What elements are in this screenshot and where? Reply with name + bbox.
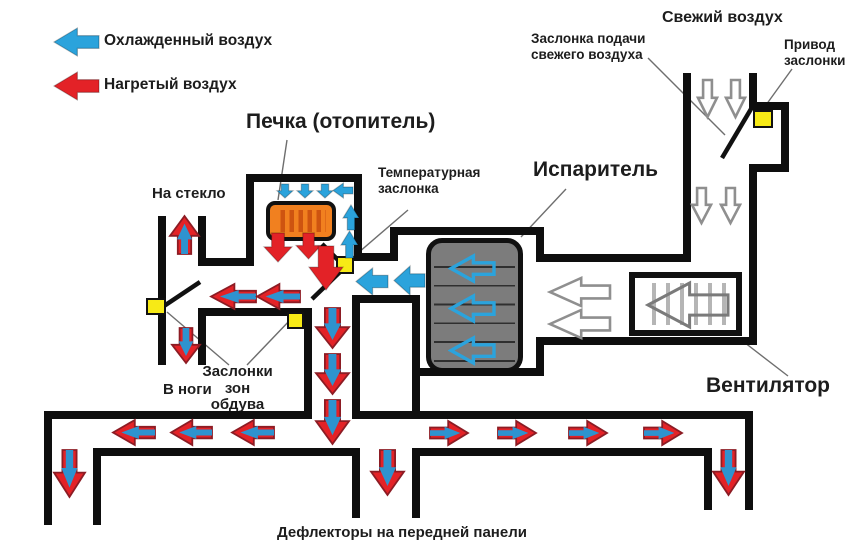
deflectors-label: Дефлекторы на передней панели bbox=[277, 524, 527, 541]
windshield-label: На стекло bbox=[152, 185, 226, 202]
vent-center-right bbox=[412, 448, 420, 518]
duct-right-arrow-2 bbox=[495, 418, 539, 448]
fan-arrow bbox=[645, 280, 731, 330]
fresh-damper-actuator-box bbox=[753, 110, 773, 128]
damper-flap-line bbox=[164, 282, 200, 306]
fresh-duct-left bbox=[683, 73, 691, 262]
cold-out-arrow-1 bbox=[391, 263, 428, 298]
heater-top-left-arrow bbox=[330, 180, 356, 201]
pointer-line bbox=[247, 318, 292, 365]
zone-dampers-label: Заслонки зон обдува bbox=[201, 364, 274, 414]
column-left bbox=[304, 308, 312, 419]
duct-left-inner bbox=[93, 448, 101, 525]
duct-bottom-bottom-left bbox=[93, 448, 360, 456]
column-arrow-1 bbox=[313, 305, 352, 351]
duct-right-arrow-1 bbox=[427, 418, 471, 448]
vent-center-left bbox=[352, 448, 360, 518]
heater-inlet-arrow-1 bbox=[274, 181, 296, 201]
fan-passage-top bbox=[536, 254, 691, 262]
feet-arrow bbox=[169, 325, 203, 366]
hvac-airflow-diagram: Охлажденный воздух Нагретый воздух Печка… bbox=[0, 0, 850, 560]
duct-bottom-bottom-right bbox=[420, 448, 712, 456]
fresh-damper-label: Заслонка подачи свежего воздуха bbox=[531, 31, 645, 63]
actuator-label: Привод заслонки bbox=[784, 37, 845, 69]
hot-column-arrow bbox=[306, 243, 346, 293]
vent-right-arrow bbox=[710, 447, 747, 498]
duct-left-arrow-2 bbox=[168, 417, 215, 448]
windshield-arrow bbox=[167, 213, 202, 257]
evap-chamber-top bbox=[390, 227, 544, 235]
fresh-in-arrow-2 bbox=[723, 77, 748, 120]
vent-center-arrow bbox=[368, 447, 407, 498]
pointer-line bbox=[766, 69, 792, 105]
blown-air-arrow-2 bbox=[547, 307, 613, 341]
fresh-down-arrow-1 bbox=[689, 185, 714, 226]
duct-left-arrow-1 bbox=[110, 417, 158, 448]
evap-flow-arrow-1 bbox=[448, 253, 497, 284]
temp-damper-label: Температурная заслонка bbox=[378, 165, 480, 197]
evap-chamber-left-lower bbox=[412, 295, 420, 419]
evap-flow-arrow-2 bbox=[448, 293, 497, 324]
windshield-duct-left bbox=[158, 216, 166, 365]
blown-air-arrow-1 bbox=[547, 275, 613, 309]
heater-title: Печка (отопитель) bbox=[246, 110, 435, 134]
legend-cold-arrow bbox=[51, 25, 102, 59]
legend-cold-label: Охлажденный воздух bbox=[104, 32, 272, 50]
heater-inlet-arrow-2 bbox=[294, 181, 316, 201]
fresh-duct-right-lower bbox=[749, 164, 757, 345]
duct-right-arrow-4 bbox=[641, 418, 685, 448]
column-arrow-3 bbox=[313, 397, 352, 447]
mix-left-arrow-2 bbox=[254, 281, 303, 312]
legend-hot-arrow bbox=[51, 69, 102, 103]
cold-out-arrow-2 bbox=[353, 265, 391, 298]
evaporator-title: Испаритель bbox=[533, 158, 658, 182]
actuator-bump-right bbox=[781, 102, 789, 172]
zone-damper-right-box bbox=[287, 312, 304, 329]
fresh-air-label: Свежий воздух bbox=[662, 9, 783, 27]
fan-title: Вентилятор bbox=[706, 374, 830, 398]
actuator-bump-bottom bbox=[753, 164, 789, 172]
fresh-in-arrow-1 bbox=[695, 77, 720, 120]
vent-left-arrow bbox=[51, 447, 88, 500]
duct-right-arrow-3 bbox=[566, 418, 610, 448]
evap-flow-arrow-3 bbox=[448, 335, 497, 366]
mix-left-arrow-1 bbox=[208, 281, 259, 312]
fresh-down-arrow-2 bbox=[718, 185, 743, 226]
evap-chamber-bottom bbox=[412, 368, 544, 376]
zone-damper-left-box bbox=[146, 298, 166, 315]
legend-hot-label: Нагретый воздух bbox=[104, 76, 237, 94]
heater-chamber-left bbox=[246, 174, 254, 266]
column-arrow-2 bbox=[313, 351, 352, 397]
duct-left-arrow-3 bbox=[229, 417, 277, 448]
heater-core-fins bbox=[276, 210, 326, 232]
hot-out-arrow-1 bbox=[261, 230, 295, 265]
column-right bbox=[352, 295, 360, 419]
